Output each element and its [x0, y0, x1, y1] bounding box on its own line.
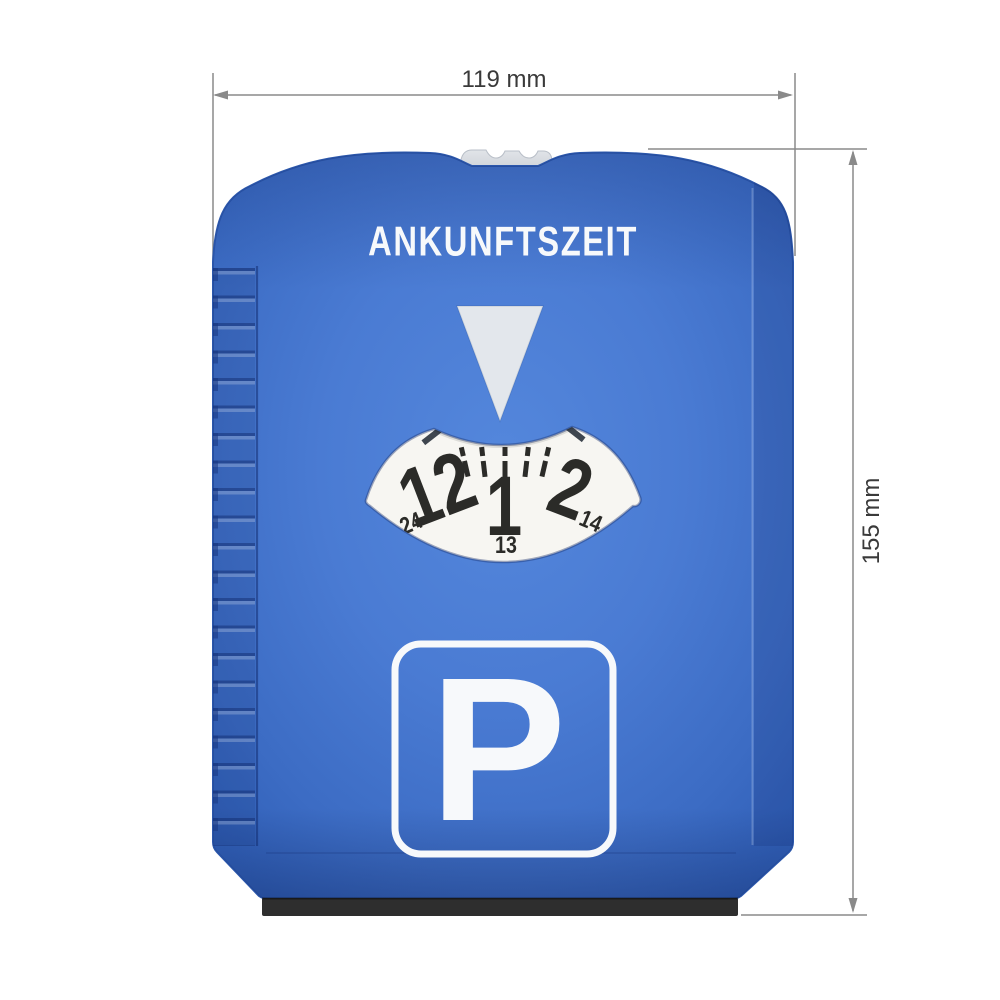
- squeegee-strip: [262, 898, 738, 916]
- product-dimension-diagram: 119 mm 155 mm ANKUNFTSZEIT 12 1: [0, 0, 1000, 1000]
- arrow-left-icon: [213, 91, 228, 100]
- parking-disc-diagram: 119 mm 155 mm ANKUNFTSZEIT 12 1: [0, 0, 1000, 1000]
- arrow-down-icon: [849, 898, 858, 913]
- parking-sign-letter: P: [430, 635, 567, 864]
- right-edge-band: [754, 182, 793, 846]
- arrival-time-label: ANKUNFTSZEIT: [368, 218, 638, 265]
- width-dimension-label: 119 mm: [462, 66, 547, 93]
- scraper-ribs: [213, 268, 255, 846]
- arrow-right-icon: [778, 91, 793, 100]
- arrow-up-icon: [849, 150, 858, 165]
- dial-hour-13: 13: [495, 531, 517, 558]
- scraper-edge: [213, 266, 257, 846]
- height-dimension-label: 155 mm: [858, 478, 885, 565]
